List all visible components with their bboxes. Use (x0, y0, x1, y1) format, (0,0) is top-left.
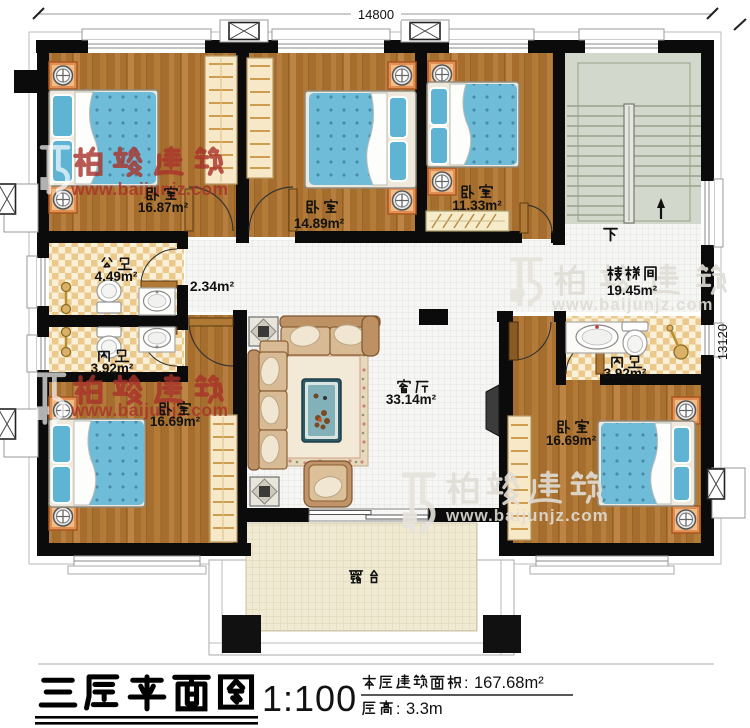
svg-text:www.baijunjz.com: www.baijunjz.com (551, 296, 714, 314)
svg-text:16.69m²: 16.69m² (150, 414, 201, 429)
svg-text::: : (396, 701, 400, 718)
svg-text:16.87m²: 16.87m² (138, 200, 189, 215)
svg-text:11.33m²: 11.33m² (452, 198, 502, 213)
svg-text:4.49m²: 4.49m² (95, 269, 138, 284)
svg-text::: : (464, 675, 468, 692)
svg-text:3.92m²: 3.92m² (604, 366, 647, 381)
svg-text:14.89m²: 14.89m² (294, 216, 345, 231)
svg-text:3.3m: 3.3m (406, 700, 443, 718)
svg-text:14800: 14800 (358, 7, 394, 22)
svg-text:1:100: 1:100 (262, 678, 357, 719)
svg-text:13120: 13120 (715, 324, 730, 360)
svg-text:www.baijunjz.com: www.baijunjz.com (445, 506, 609, 525)
svg-text:167.68m²: 167.68m² (474, 674, 544, 692)
svg-text:33.14m²: 33.14m² (386, 392, 437, 407)
svg-text:2.34m²: 2.34m² (190, 278, 235, 294)
svg-text:16.69m²: 16.69m² (546, 433, 597, 448)
svg-text:19.45m²: 19.45m² (607, 283, 658, 298)
svg-text:3.92m²: 3.92m² (91, 361, 134, 376)
